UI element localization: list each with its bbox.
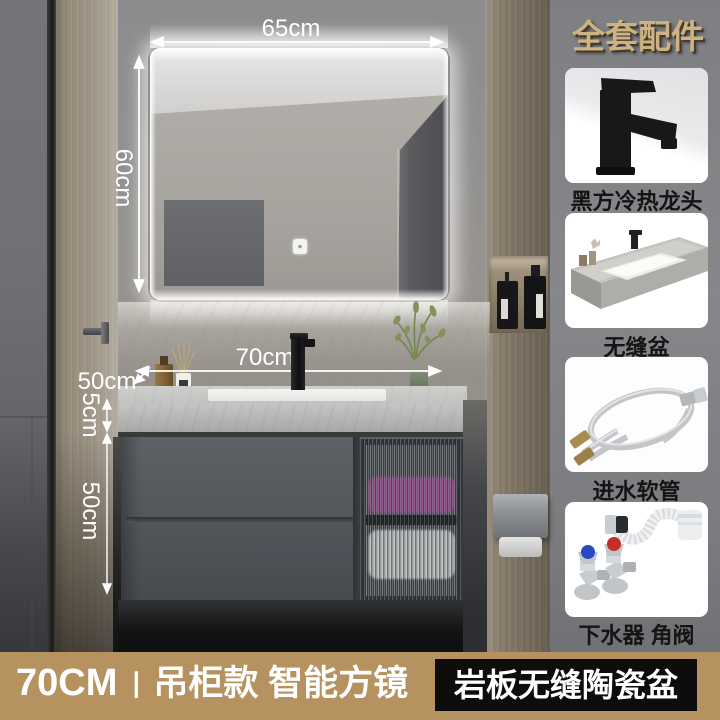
svg-text:5cm: 5cm <box>77 392 104 437</box>
svg-text:50cm: 50cm <box>77 482 104 541</box>
svg-text:65cm: 65cm <box>262 15 321 42</box>
svg-text:70cm: 70cm <box>236 344 295 371</box>
svg-text:60cm: 60cm <box>110 149 137 208</box>
svg-text:50cm: 50cm <box>78 368 137 395</box>
